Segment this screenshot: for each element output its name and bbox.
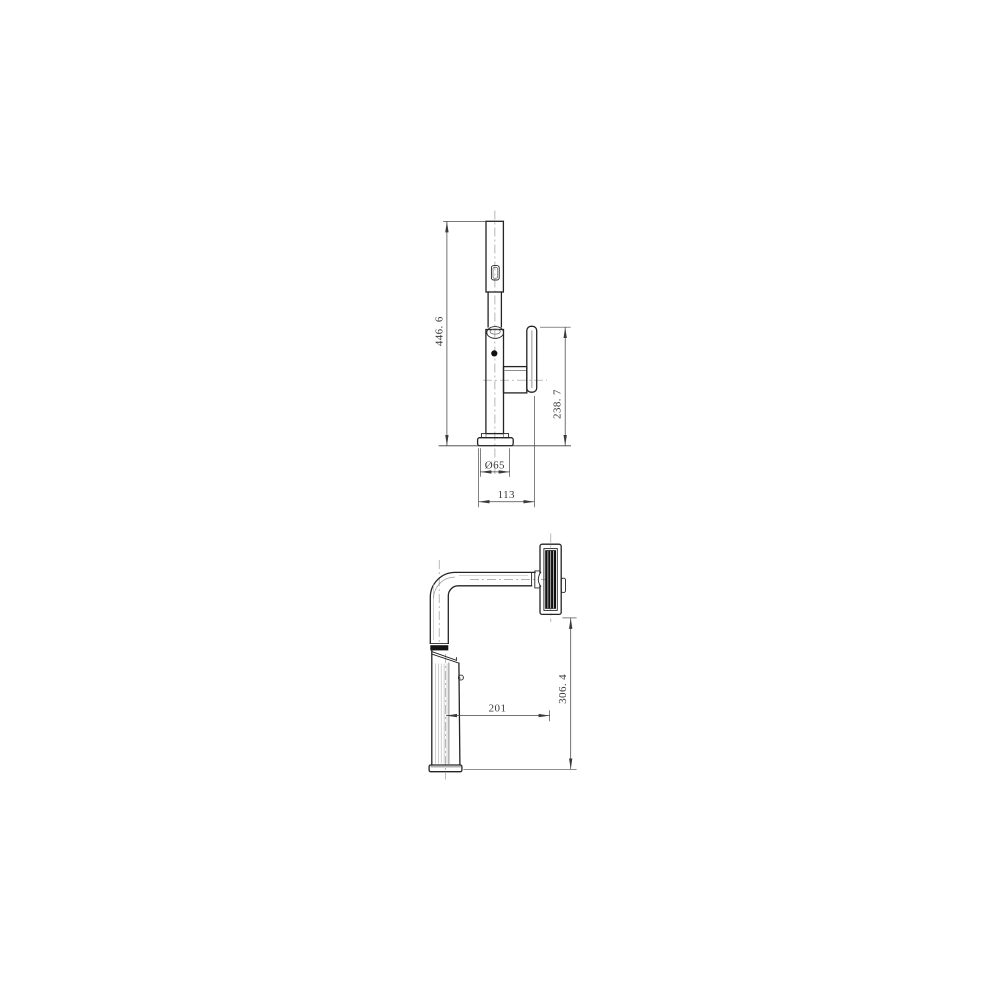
dim-handle-height: 238. 7 <box>540 327 571 446</box>
base-flange-front <box>478 438 514 446</box>
faucet-dimension-drawing: 446. 6 238. 7 Ø65 113 <box>0 0 1001 1001</box>
body-joint-band <box>430 645 448 650</box>
sensor-button-outline <box>491 266 499 280</box>
body-top-slant <box>432 652 457 663</box>
dim-label-overall-height: 446. 6 <box>433 316 445 346</box>
side-view: 201 306. 4 <box>429 534 576 780</box>
drawing-sheet: 446. 6 238. 7 Ø65 113 <box>0 0 1001 1001</box>
dim-label-base-diameter: Ø65 <box>485 460 505 472</box>
dim-spout-reach: 201 <box>446 703 550 722</box>
front-view: 446. 6 238. 7 Ø65 113 <box>433 211 571 508</box>
dim-label-spout-reach: 201 <box>489 703 507 715</box>
spout-outer-profile <box>430 572 535 643</box>
dim-overall-width: 113 <box>479 396 535 507</box>
body-right-edge <box>459 663 460 765</box>
dim-label-handle-height: 238. 7 <box>551 389 563 419</box>
dim-label-head-height: 306. 4 <box>557 674 569 704</box>
spout-inner-profile <box>448 586 531 644</box>
dim-overall-height: 446. 6 <box>433 221 486 445</box>
sensor-button-inner <box>493 267 498 278</box>
dim-label-overall-width: 113 <box>498 489 515 501</box>
body-slant-notch <box>456 658 459 664</box>
indicator-dot <box>491 350 497 356</box>
dim-head-height: 306. 4 <box>464 618 577 769</box>
